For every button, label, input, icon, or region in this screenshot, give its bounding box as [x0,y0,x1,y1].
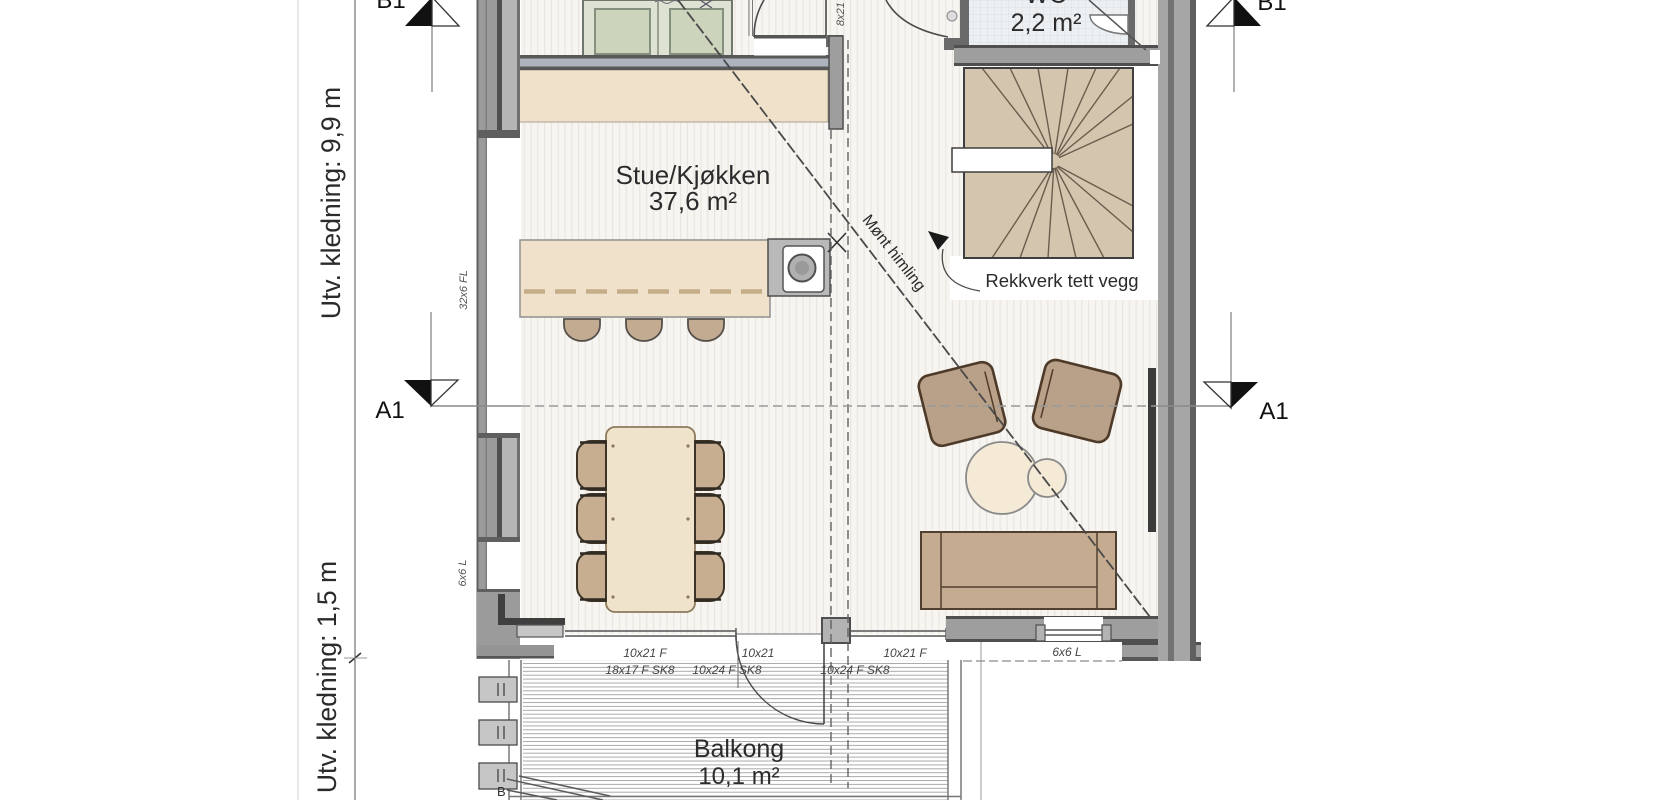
svg-text:WC: WC [1025,0,1067,9]
svg-text:10x24 F SK8: 10x24 F SK8 [692,663,761,677]
svg-text:2,2 m²: 2,2 m² [1011,9,1082,37]
svg-text:Rekkverk tett vegg: Rekkverk tett vegg [985,270,1138,291]
svg-text:32x6 FL: 32x6 FL [458,270,470,310]
svg-text:18x17 F SK8: 18x17 F SK8 [605,663,674,677]
svg-text:Utv. kledning: 9,9 m: Utv. kledning: 9,9 m [316,87,346,319]
svg-text:37,6 m²: 37,6 m² [649,186,737,216]
svg-text:10,1 m²: 10,1 m² [698,763,779,790]
svg-text:B: B [497,784,506,799]
svg-text:A1: A1 [1259,398,1288,425]
svg-text:A1: A1 [375,397,404,424]
svg-text:B1: B1 [1257,0,1286,16]
svg-text:10x21 F: 10x21 F [623,646,667,660]
svg-text:8x21: 8x21 [835,2,847,26]
svg-text:10x24 F SK8: 10x24 F SK8 [820,663,889,677]
svg-text:6x6 L: 6x6 L [457,560,469,587]
svg-text:10x21: 10x21 [742,646,775,660]
svg-text:10x21 F: 10x21 F [883,646,927,660]
svg-text:Utv. kledning: 1,5 m: Utv. kledning: 1,5 m [312,561,342,793]
svg-text:6x6 L: 6x6 L [1052,645,1081,659]
svg-text:B1: B1 [376,0,405,14]
svg-text:Balkong: Balkong [694,735,784,763]
